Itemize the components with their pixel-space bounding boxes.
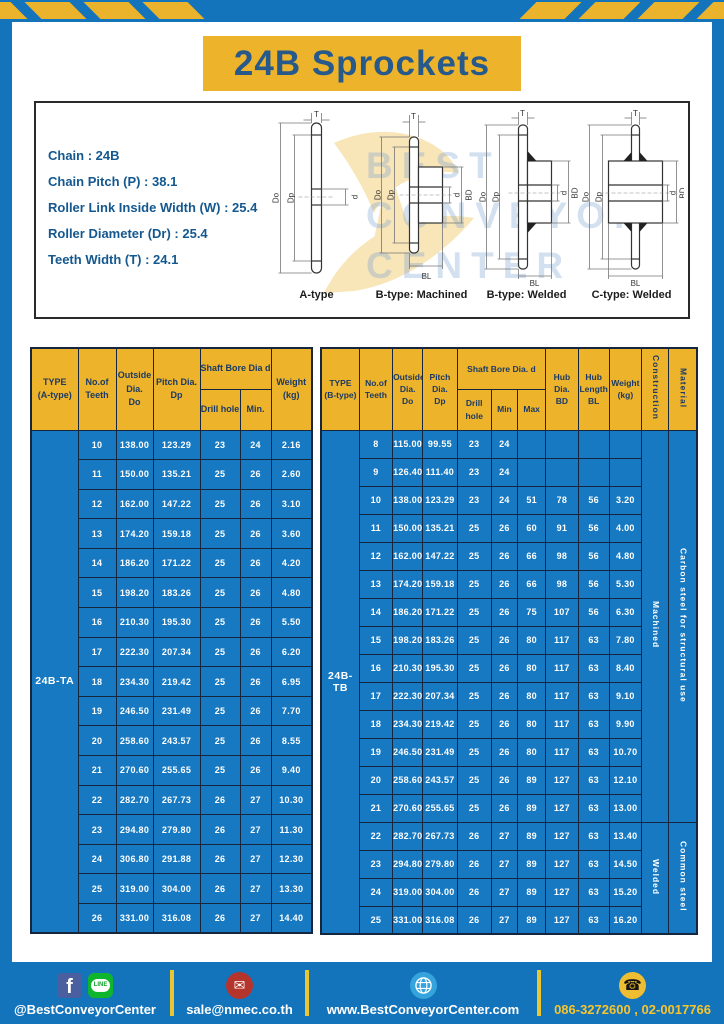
table-cell: 24 xyxy=(240,430,271,460)
table-cell: 19 xyxy=(359,738,392,766)
svg-text:Do: Do xyxy=(374,189,383,200)
table-cell: 6.30 xyxy=(609,598,641,626)
social-handle: @BestConveyorCenter xyxy=(14,1002,156,1017)
table-cell: 25 xyxy=(200,519,240,549)
table-cell: 25 xyxy=(200,667,240,697)
table-row: 19246.50231.492526801176310.70 xyxy=(321,738,697,766)
table-cell: 80 xyxy=(518,710,546,738)
table-cell: 10 xyxy=(78,430,116,460)
table-row: 15198.20183.26252680117637.80 xyxy=(321,626,697,654)
table-cell: 25 xyxy=(457,766,491,794)
table-cell: 13.40 xyxy=(609,822,641,850)
table-cell: 60 xyxy=(518,514,546,542)
table-cell: 98 xyxy=(546,570,578,598)
table-cell: 26 xyxy=(240,667,271,697)
table-cell: 186.20 xyxy=(393,598,423,626)
table-cell: 162.00 xyxy=(393,542,423,570)
table-cell: 7.70 xyxy=(271,696,312,726)
table-cell: 63 xyxy=(578,710,609,738)
email-address: sale@nmec.co.th xyxy=(186,1002,293,1017)
table-cell: 98 xyxy=(546,542,578,570)
table-row: 22282.70267.732627891276313.40WeldedComm… xyxy=(321,822,697,850)
header-outside-dia: Outside Dia. Do xyxy=(116,348,153,430)
table-cell: 186.20 xyxy=(116,548,153,578)
table-cell: 117 xyxy=(546,626,578,654)
table-cell: 150.00 xyxy=(116,460,153,490)
table-cell: 9.40 xyxy=(271,756,312,786)
table-cell: 21 xyxy=(78,756,116,786)
table-cell: 12 xyxy=(78,489,116,519)
table-cell: 234.30 xyxy=(116,667,153,697)
table-cell: 18 xyxy=(359,710,392,738)
table-cell: 5.50 xyxy=(271,608,312,638)
stripe xyxy=(697,2,724,19)
table-cell: 24 xyxy=(491,458,517,486)
table-row: 18234.30219.42252680117639.90 xyxy=(321,710,697,738)
table-cell: 207.34 xyxy=(423,682,457,710)
table-cell: 246.50 xyxy=(116,696,153,726)
table-cell: 195.30 xyxy=(153,608,200,638)
table-cell: 20 xyxy=(78,726,116,756)
svg-text:T: T xyxy=(520,109,525,118)
table-cell: 138.00 xyxy=(116,430,153,460)
table-cell: 18 xyxy=(78,667,116,697)
header-outside-dia: Outside Dia. Do xyxy=(393,348,423,430)
svg-text:d: d xyxy=(560,191,569,195)
table-cell: 91 xyxy=(546,514,578,542)
table-cell: 75 xyxy=(518,598,546,626)
table-cell: 13 xyxy=(359,570,392,598)
table-cell: 10.30 xyxy=(271,785,312,815)
table-cell: 26 xyxy=(78,904,116,934)
stripe-group-right xyxy=(528,2,724,19)
header-shaft-bore: Shaft Bore Dia. d xyxy=(457,348,546,389)
table-cell: 5.30 xyxy=(609,570,641,598)
table-cell: 26 xyxy=(240,578,271,608)
table-cell: 243.57 xyxy=(153,726,200,756)
table-cell: 8.40 xyxy=(609,654,641,682)
table-cell: 26 xyxy=(200,904,240,934)
table-cell: 23 xyxy=(457,430,491,458)
table-cell: 26 xyxy=(491,542,517,570)
spec-line: Roller Diameter (Dr) : 25.4 xyxy=(48,221,264,247)
header-hub-length: Hub Length BL xyxy=(578,348,609,430)
table-cell: 25 xyxy=(457,682,491,710)
table-cell: 26 xyxy=(457,822,491,850)
table-cell: 198.20 xyxy=(393,626,423,654)
footer-phone-section: ☎ 086-3272600 , 02-0017766 xyxy=(541,970,724,1017)
table-cell: 258.60 xyxy=(116,726,153,756)
header-type: TYPE (A-type) xyxy=(31,348,78,430)
title-banner: 24B Sprockets xyxy=(203,36,521,91)
table-cell: 15.20 xyxy=(609,878,641,906)
svg-text:Do: Do xyxy=(582,191,591,202)
table-cell xyxy=(546,458,578,486)
table-cell: 26 xyxy=(491,682,517,710)
table-cell: 63 xyxy=(578,850,609,878)
table-cell: 282.70 xyxy=(116,785,153,815)
table-cell: 16 xyxy=(359,654,392,682)
table-cell: 15 xyxy=(78,578,116,608)
table-cell: 9.90 xyxy=(609,710,641,738)
table-cell xyxy=(609,430,641,458)
table-cell: 80 xyxy=(518,738,546,766)
header-pitch-dia: Pitch Dia. Dp xyxy=(153,348,200,430)
table-cell: 12.10 xyxy=(609,766,641,794)
svg-text:Do: Do xyxy=(272,192,281,203)
table-cell xyxy=(578,458,609,486)
table-cell xyxy=(546,430,578,458)
table-cell: 222.30 xyxy=(393,682,423,710)
table-cell: 13.30 xyxy=(271,874,312,904)
table-cell: 27 xyxy=(491,878,517,906)
table-cell: 316.08 xyxy=(423,906,457,934)
table-row: 23294.80279.802627891276314.50 xyxy=(321,850,697,878)
header-teeth: No.of Teeth xyxy=(359,348,392,430)
table-cell: 8 xyxy=(359,430,392,458)
svg-text:d: d xyxy=(453,193,462,197)
table-cell: 198.20 xyxy=(116,578,153,608)
spec-line: Chain : 24B xyxy=(48,143,264,169)
table-cell: 270.60 xyxy=(116,756,153,786)
table-row: 17222.30207.34252680117639.10 xyxy=(321,682,697,710)
table-cell: 316.08 xyxy=(153,904,200,934)
stripe xyxy=(0,2,28,19)
table-cell: 16 xyxy=(78,608,116,638)
header-shaft-bore: Shaft Bore Dia d xyxy=(200,348,271,389)
table-cell: 111.40 xyxy=(423,458,457,486)
table-cell: 26 xyxy=(491,514,517,542)
table-cell: 12 xyxy=(359,542,392,570)
stripe xyxy=(84,2,146,19)
sprocket-table-b: TYPE (B-type) No.of Teeth Outside Dia. D… xyxy=(320,347,698,935)
page-sheet: 24B Sprockets BEST CONVEYOR CENTER Chain… xyxy=(12,22,712,962)
table-cell: 25 xyxy=(457,738,491,766)
header-pitch-dia: Pitch Dia. Dp xyxy=(423,348,457,430)
table-cell: 2.16 xyxy=(271,430,312,460)
table-cell: 195.30 xyxy=(423,654,457,682)
table-row: 24B-TA10138.00123.2923242.16 xyxy=(31,430,312,460)
merged-cell: Common steel xyxy=(669,822,697,934)
table-cell: 270.60 xyxy=(393,794,423,822)
table-cell: 26 xyxy=(491,570,517,598)
table-row: 14186.20171.22252675107566.30 xyxy=(321,598,697,626)
svg-text:T: T xyxy=(411,112,416,121)
table-cell: 255.65 xyxy=(423,794,457,822)
svg-text:d: d xyxy=(351,195,360,199)
type-cell: 24B-TA xyxy=(31,430,78,933)
globe-icon xyxy=(410,972,437,999)
table-cell: 3.20 xyxy=(609,486,641,514)
table-cell: 20 xyxy=(359,766,392,794)
table-cell: 10 xyxy=(359,486,392,514)
table-cell: 25 xyxy=(200,637,240,667)
page-title: 24B Sprockets xyxy=(234,44,490,84)
table-cell: 127 xyxy=(546,878,578,906)
table-cell: 138.00 xyxy=(393,486,423,514)
table-cell: 294.80 xyxy=(393,850,423,878)
table-cell: 4.80 xyxy=(609,542,641,570)
table-cell: 127 xyxy=(546,906,578,934)
table-cell: 13.00 xyxy=(609,794,641,822)
drawing-c-welded: T Do Dp d xyxy=(579,109,684,317)
table-cell: 51 xyxy=(518,486,546,514)
table-cell: 89 xyxy=(518,878,546,906)
table-cell: 27 xyxy=(491,850,517,878)
type-cell: 24B-TB xyxy=(321,430,359,934)
table-cell: 246.50 xyxy=(393,738,423,766)
phone-numbers: 086-3272600 , 02-0017766 xyxy=(554,1002,711,1017)
table-cell: 219.42 xyxy=(153,667,200,697)
table-row: 10138.00123.2923245178563.20 xyxy=(321,486,697,514)
table-cell: 26 xyxy=(240,519,271,549)
table-cell: 306.80 xyxy=(116,844,153,874)
table-cell: 27 xyxy=(491,906,517,934)
table-cell: 6.95 xyxy=(271,667,312,697)
table-cell: 123.29 xyxy=(423,486,457,514)
table-cell: 89 xyxy=(518,906,546,934)
drawing-caption: C-type: Welded xyxy=(592,289,672,301)
table-cell: 63 xyxy=(578,766,609,794)
header-weight: Weight (kg) xyxy=(609,348,641,430)
table-cell: 231.49 xyxy=(423,738,457,766)
table-cell: 11 xyxy=(359,514,392,542)
table-cell: 25 xyxy=(200,756,240,786)
header-construction: Construction xyxy=(642,348,669,430)
table-cell: 162.00 xyxy=(116,489,153,519)
table-cell: 279.80 xyxy=(423,850,457,878)
table-cell: 89 xyxy=(518,794,546,822)
table-cell: 23 xyxy=(78,815,116,845)
table-cell: 255.65 xyxy=(153,756,200,786)
table-cell: 23 xyxy=(359,850,392,878)
table-cell: 25 xyxy=(200,460,240,490)
table-cell: 25 xyxy=(457,710,491,738)
table-cell: 66 xyxy=(518,570,546,598)
drawing-caption: B-type: Welded xyxy=(487,289,567,301)
header-weight: Weight (kg) xyxy=(271,348,312,430)
table-cell: 243.57 xyxy=(423,766,457,794)
table-cell: 11.30 xyxy=(271,815,312,845)
table-cell: 304.00 xyxy=(423,878,457,906)
header-min: Min xyxy=(491,389,517,430)
table-cell xyxy=(609,458,641,486)
table-cell: 279.80 xyxy=(153,815,200,845)
table-cell: 135.21 xyxy=(153,460,200,490)
table-cell: 123.29 xyxy=(153,430,200,460)
table-cell: 26 xyxy=(240,756,271,786)
table-cell xyxy=(578,430,609,458)
table-cell: 26 xyxy=(240,460,271,490)
table-cell: 210.30 xyxy=(116,608,153,638)
svg-text:BD: BD xyxy=(465,189,474,200)
table-cell: 174.20 xyxy=(116,519,153,549)
table-cell: 26 xyxy=(491,626,517,654)
drawing-caption: B-type: Machined xyxy=(376,289,468,301)
table-cell: 25 xyxy=(457,514,491,542)
table-cell: 222.30 xyxy=(116,637,153,667)
table-row: 25331.00316.082627891276316.20 xyxy=(321,906,697,934)
table-cell: 319.00 xyxy=(116,874,153,904)
table-cell: 25 xyxy=(457,654,491,682)
technical-drawings: T Do Dp d A-type xyxy=(264,103,688,317)
table-cell: 21 xyxy=(359,794,392,822)
table-cell: 159.18 xyxy=(153,519,200,549)
table-cell: 24 xyxy=(491,430,517,458)
chain-specs: Chain : 24B Chain Pitch (P) : 38.1 Rolle… xyxy=(36,103,264,317)
table-cell: 27 xyxy=(240,874,271,904)
drawing-caption: A-type xyxy=(299,289,333,301)
table-cell: 11 xyxy=(78,460,116,490)
website-url: www.BestConveyorCenter.com xyxy=(327,1002,519,1017)
table-cell: 80 xyxy=(518,654,546,682)
merged-cell: Welded xyxy=(642,822,669,934)
table-cell: 4.80 xyxy=(271,578,312,608)
table-cell: 319.00 xyxy=(393,878,423,906)
header-drill-hole: Drill hole xyxy=(457,389,491,430)
table-cell: 7.80 xyxy=(609,626,641,654)
table-cell: 27 xyxy=(491,822,517,850)
table-cell: 63 xyxy=(578,682,609,710)
table-cell: 27 xyxy=(240,904,271,934)
table-cell: 159.18 xyxy=(423,570,457,598)
table-cell: 63 xyxy=(578,626,609,654)
table-cell: 117 xyxy=(546,738,578,766)
table-cell: 24 xyxy=(491,486,517,514)
table-cell: 25 xyxy=(200,696,240,726)
table-cell: 304.00 xyxy=(153,874,200,904)
table-cell: 26 xyxy=(200,874,240,904)
table-cell: 171.22 xyxy=(423,598,457,626)
table-row: 12162.00147.2225266698564.80 xyxy=(321,542,697,570)
merged-cell: Carbon steel for structural use xyxy=(669,430,697,822)
table-cell: 23 xyxy=(200,430,240,460)
table-cell: 26 xyxy=(491,654,517,682)
table-cell: 26 xyxy=(200,844,240,874)
table-cell: 63 xyxy=(578,794,609,822)
table-cell: 26 xyxy=(491,738,517,766)
table-cell: 282.70 xyxy=(393,822,423,850)
phone-icon: ☎ xyxy=(619,972,646,999)
spec-line: Chain Pitch (P) : 38.1 xyxy=(48,169,264,195)
table-cell: 26 xyxy=(457,850,491,878)
table-cell: 147.22 xyxy=(423,542,457,570)
footer-email-section: ✉ sale@nmec.co.th xyxy=(174,970,305,1017)
table-cell: 127 xyxy=(546,766,578,794)
table-cell: 26 xyxy=(240,548,271,578)
table-cell: 63 xyxy=(578,654,609,682)
table-cell: 56 xyxy=(578,486,609,514)
table-cell: 267.73 xyxy=(153,785,200,815)
svg-text:BD: BD xyxy=(679,187,685,198)
stripe xyxy=(25,2,87,19)
table-cell: 56 xyxy=(578,598,609,626)
stripe xyxy=(579,2,641,19)
table-cell: 234.30 xyxy=(393,710,423,738)
table-cell: 22 xyxy=(359,822,392,850)
sprocket-table-a: TYPE (A-type) No.of Teeth Outside Dia. D… xyxy=(30,347,313,934)
table-cell: 150.00 xyxy=(393,514,423,542)
table-row: 20258.60243.572526891276312.10 xyxy=(321,766,697,794)
table-cell: 12.30 xyxy=(271,844,312,874)
top-stripe-bar xyxy=(0,0,724,22)
table-cell: 24 xyxy=(359,878,392,906)
table-cell: 9 xyxy=(359,458,392,486)
stripe xyxy=(143,2,205,19)
table-cell: 117 xyxy=(546,710,578,738)
table-cell: 56 xyxy=(578,570,609,598)
email-icon: ✉ xyxy=(226,972,253,999)
table-cell: 26 xyxy=(491,710,517,738)
table-row: 16210.30195.30252680117638.40 xyxy=(321,654,697,682)
table-cell: 27 xyxy=(240,844,271,874)
footer-social-section: f LINE @BestConveyorCenter xyxy=(0,969,170,1017)
table-cell: 25 xyxy=(457,542,491,570)
table-row: 24319.00304.002627891276315.20 xyxy=(321,878,697,906)
table-row: 9126.40111.402324 xyxy=(321,458,697,486)
drawing-b-welded: T Do Dp d xyxy=(474,109,579,317)
table-cell: 26 xyxy=(240,489,271,519)
table-cell: 26 xyxy=(200,815,240,845)
spec-tables: TYPE (A-type) No.of Teeth Outside Dia. D… xyxy=(30,347,712,935)
table-row: 21270.60255.652526891276313.00 xyxy=(321,794,697,822)
table-cell: 25 xyxy=(200,726,240,756)
table-cell: 23 xyxy=(457,486,491,514)
table-cell: 26 xyxy=(457,906,491,934)
table-cell: 127 xyxy=(546,850,578,878)
table-cell: 26 xyxy=(240,726,271,756)
table-cell: 183.26 xyxy=(423,626,457,654)
table-cell: 126.40 xyxy=(393,458,423,486)
table-cell: 115.00 xyxy=(393,430,423,458)
footer-website-section: www.BestConveyorCenter.com xyxy=(309,970,537,1017)
table-cell: 27 xyxy=(240,815,271,845)
table-cell: 19 xyxy=(78,696,116,726)
svg-text:Dp: Dp xyxy=(287,192,296,203)
table-cell: 25 xyxy=(200,578,240,608)
table-cell: 24 xyxy=(78,844,116,874)
table-cell: 3.60 xyxy=(271,519,312,549)
header-material: Material xyxy=(669,348,697,430)
table-cell: 25 xyxy=(457,570,491,598)
table-cell: 3.10 xyxy=(271,489,312,519)
table-cell: 171.22 xyxy=(153,548,200,578)
table-cell: 210.30 xyxy=(393,654,423,682)
table-cell: 9.10 xyxy=(609,682,641,710)
table-cell: 8.55 xyxy=(271,726,312,756)
svg-text:BD: BD xyxy=(571,187,580,198)
table-cell: 10.70 xyxy=(609,738,641,766)
table-cell: 25 xyxy=(200,489,240,519)
table-cell: 26 xyxy=(457,878,491,906)
drawing-a-type: T Do Dp d A-type xyxy=(264,109,369,317)
table-cell: 127 xyxy=(546,822,578,850)
table-cell: 117 xyxy=(546,654,578,682)
table-cell: 291.88 xyxy=(153,844,200,874)
table-cell: 331.00 xyxy=(116,904,153,934)
table-row: 13174.20159.1825266698565.30 xyxy=(321,570,697,598)
stripe xyxy=(638,2,700,19)
table-cell: 80 xyxy=(518,682,546,710)
table-cell: 25 xyxy=(457,794,491,822)
table-cell: 63 xyxy=(578,738,609,766)
table-cell: 135.21 xyxy=(423,514,457,542)
table-cell: 2.60 xyxy=(271,460,312,490)
table-cell: 107 xyxy=(546,598,578,626)
table-cell: 258.60 xyxy=(393,766,423,794)
header-drill-hole: Drill hole xyxy=(200,389,240,430)
table-cell: 78 xyxy=(546,486,578,514)
